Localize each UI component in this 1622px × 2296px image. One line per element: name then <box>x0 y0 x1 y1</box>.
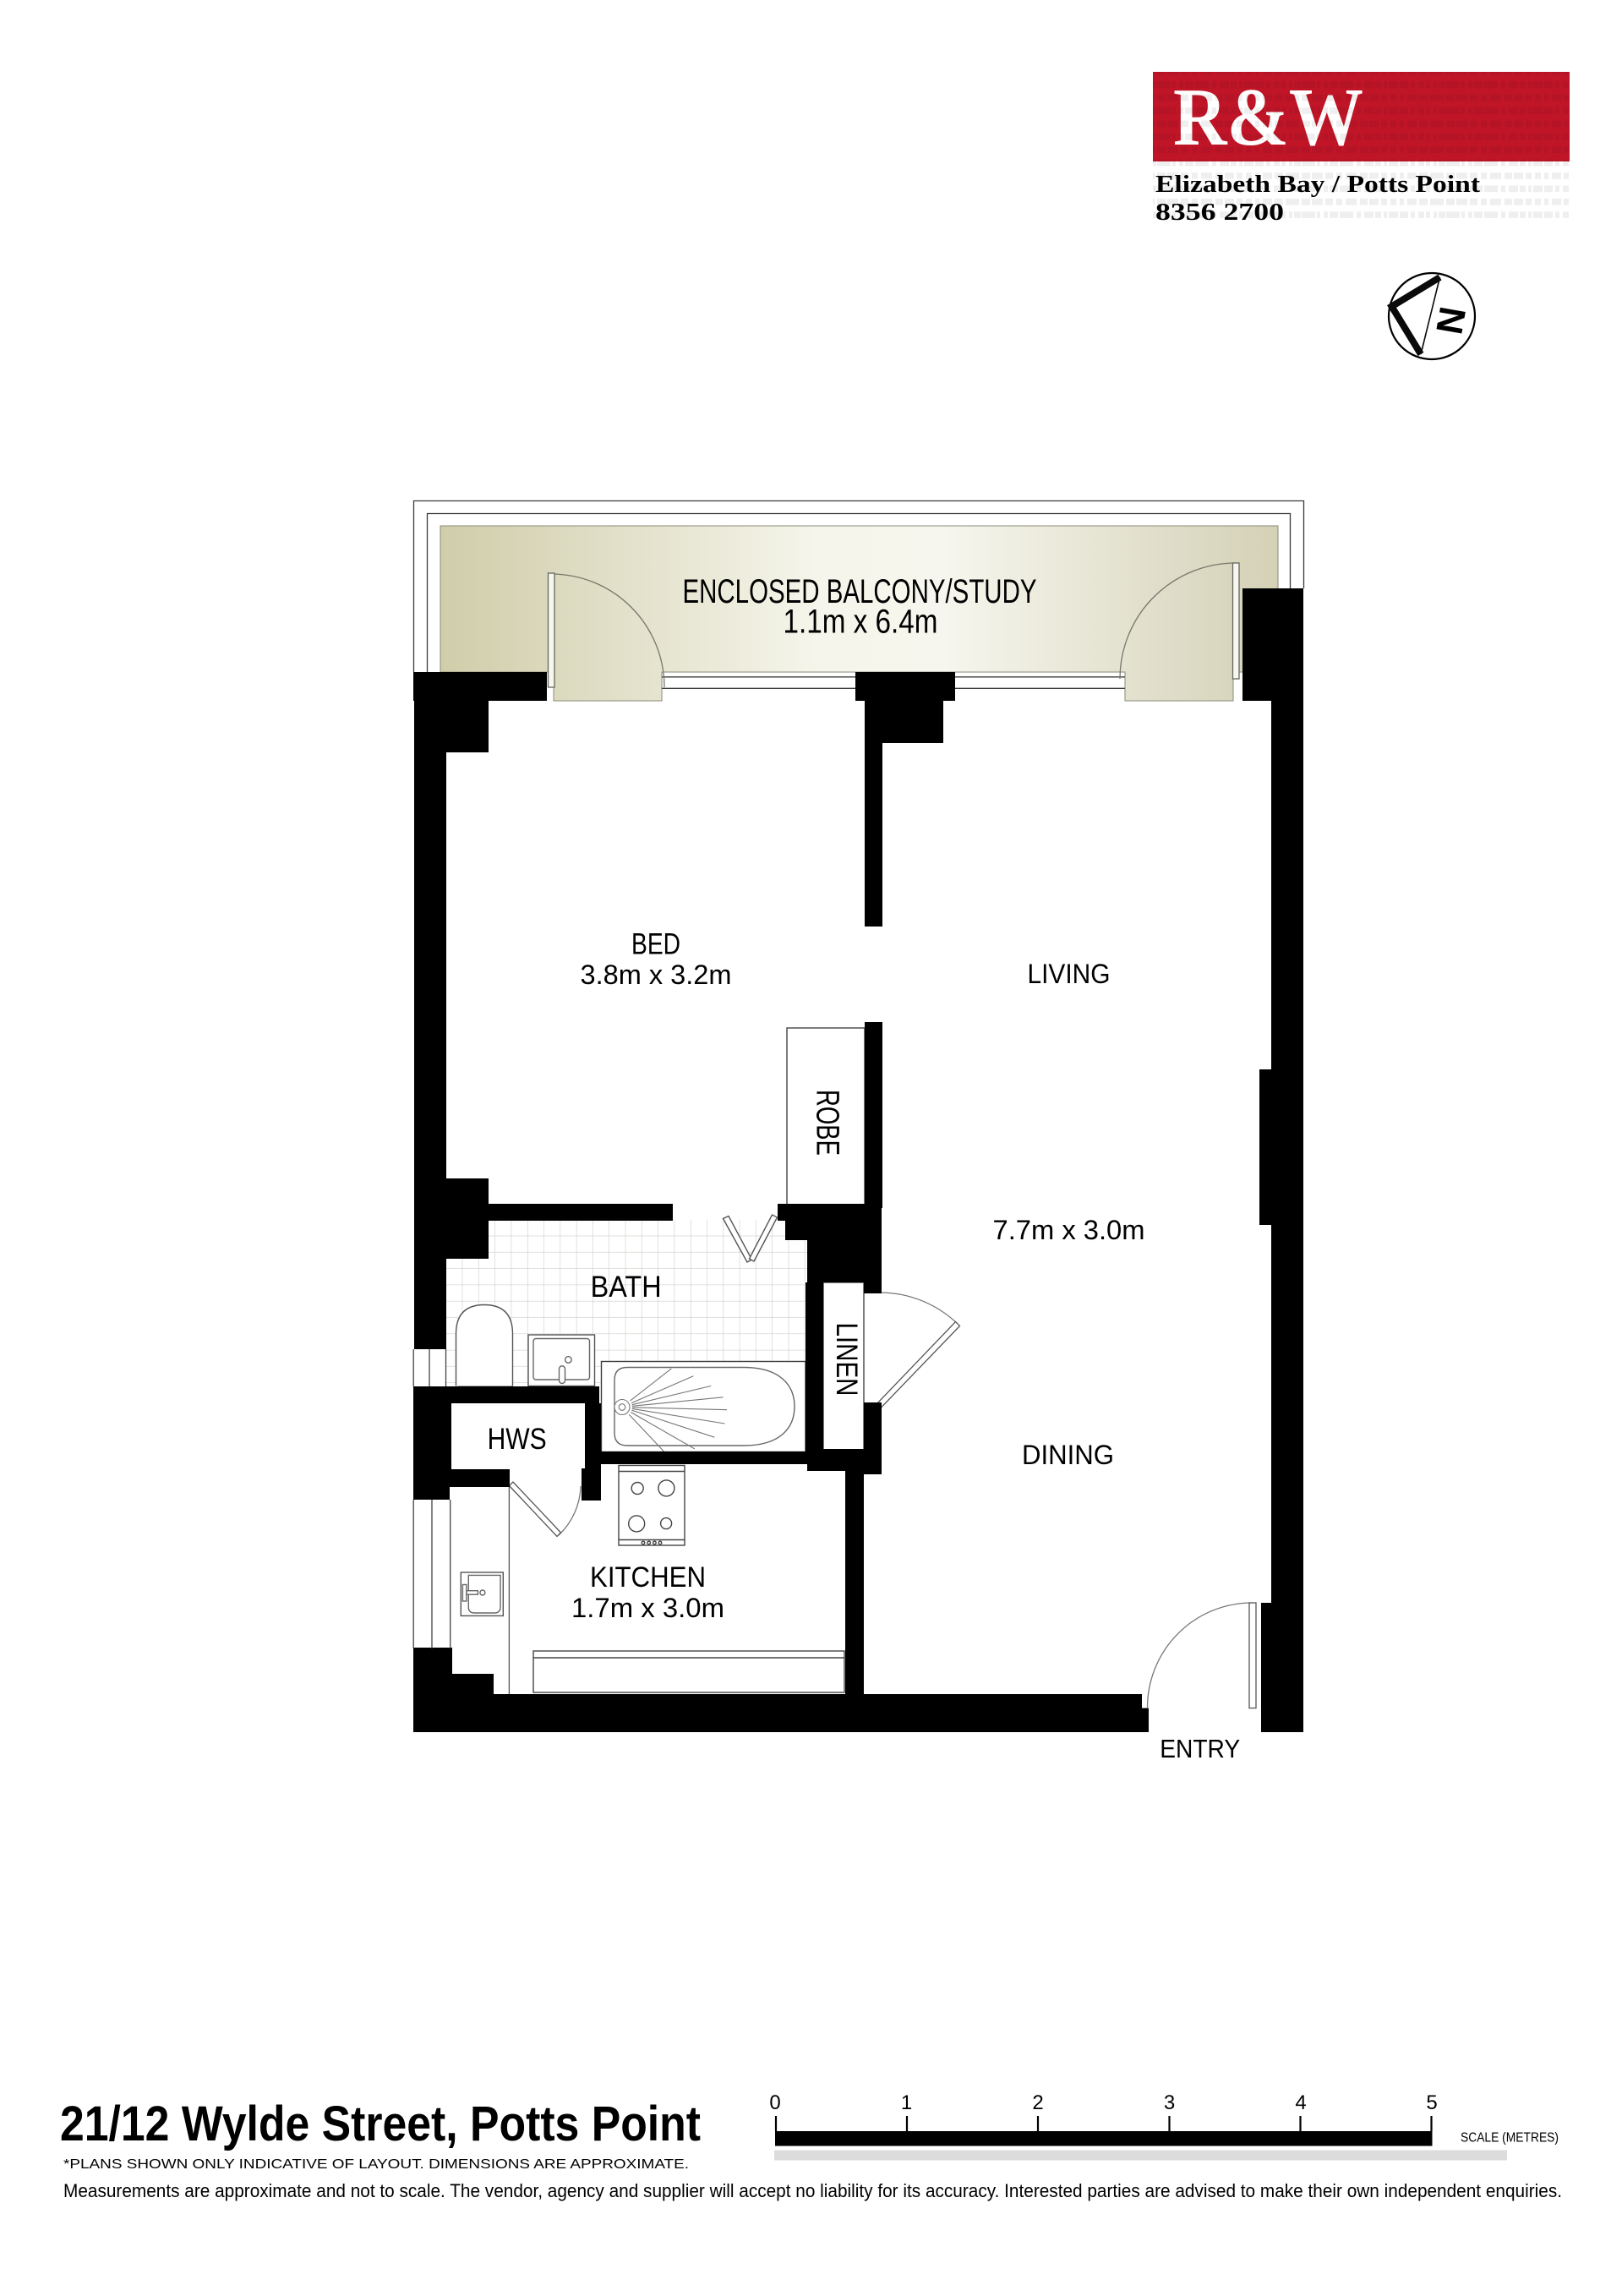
svg-text:8356 2700: 8356 2700 <box>1155 200 1284 226</box>
svg-text:7.7m x 3.0m: 7.7m x 3.0m <box>993 1215 1145 1245</box>
svg-text:LIVING: LIVING <box>1028 959 1111 989</box>
svg-text:DINING: DINING <box>1022 1440 1114 1470</box>
svg-text:1.7m x 3.0m: 1.7m x 3.0m <box>571 1593 724 1623</box>
svg-text:1.1m x 6.4m: 1.1m x 6.4m <box>784 604 938 641</box>
svg-text:HWS: HWS <box>488 1423 547 1456</box>
svg-text:3.8m x 3.2m: 3.8m x 3.2m <box>581 959 732 990</box>
svg-text:SCALE (METRES): SCALE (METRES) <box>1461 2131 1559 2146</box>
svg-text:N: N <box>1428 303 1473 337</box>
svg-text:Elizabeth Bay / Potts Point: Elizabeth Bay / Potts Point <box>1155 172 1481 198</box>
svg-text:0: 0 <box>769 2091 780 2114</box>
svg-text:1: 1 <box>901 2091 912 2114</box>
svg-text:ROBE: ROBE <box>810 1090 845 1156</box>
svg-text:BATH: BATH <box>591 1271 662 1304</box>
svg-text:5: 5 <box>1426 2091 1437 2114</box>
svg-text:KITCHEN: KITCHEN <box>590 1561 706 1594</box>
svg-text:2: 2 <box>1032 2091 1043 2114</box>
svg-text:4: 4 <box>1295 2091 1306 2114</box>
svg-text:BED: BED <box>631 928 680 961</box>
svg-text:*PLANS SHOWN ONLY INDICATIVE O: *PLANS SHOWN ONLY INDICATIVE OF LAYOUT. … <box>63 2157 689 2172</box>
svg-text:21/12 Wylde Street, Potts Poin: 21/12 Wylde Street, Potts Point <box>60 2096 701 2151</box>
svg-text:3: 3 <box>1164 2091 1175 2114</box>
svg-text:ENTRY: ENTRY <box>1160 1734 1240 1763</box>
svg-text:LINEN: LINEN <box>830 1323 863 1397</box>
svg-text:Measurements are approximate a: Measurements are approximate and not to … <box>63 2180 1562 2201</box>
